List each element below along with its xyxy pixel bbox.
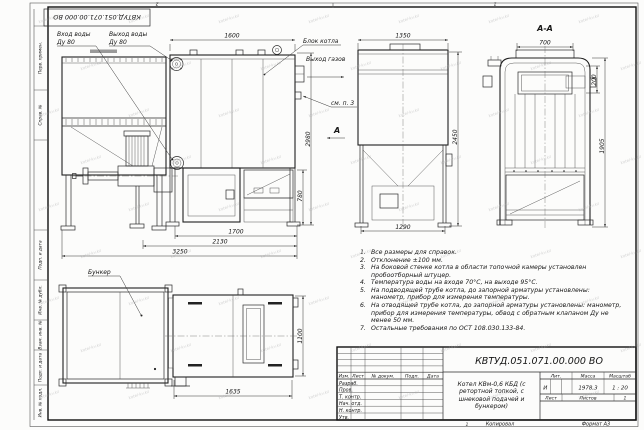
inverted-stamp: КВТУД.051.071.00.000 ВО: [44, 9, 150, 26]
tb-scale-value: 1 : 20: [612, 386, 628, 392]
tb-row-nkontr: Н. контр.: [339, 408, 362, 414]
gas-outlet-label: Выход газов: [306, 56, 346, 63]
tb-sheets-label: Листов: [578, 396, 596, 402]
zone-top-left: 2: [155, 1, 158, 7]
side-view-geometry: [355, 44, 452, 230]
note-item-3: 3.На боковой стенке котла в области топо…: [360, 264, 622, 279]
water-inlet-label: Вход воды: [57, 31, 91, 38]
dim-plan-1635: 1635: [225, 389, 240, 396]
left-label-podp-data-2: Подп. и дата: [38, 353, 44, 383]
dim-side-2450: 2450: [452, 129, 459, 144]
tb-row-tkontr: Т. контр.: [339, 394, 361, 400]
notes-list: 1.Все размеры для справок. 2.Отклонение …: [360, 249, 622, 332]
bunker-label: Бункер: [88, 269, 111, 276]
tb-mass-header: Масса: [581, 374, 596, 380]
note-num: 3.: [360, 264, 371, 279]
dim-front-780: 780: [297, 190, 304, 202]
drawing-canvas: КВТУД.051.071.00.000 ВО 2 1 1 Перв. прим…: [0, 0, 644, 430]
tb-row-nachotd: Нач. отд.: [339, 401, 362, 407]
note-text: Остальные требования по ОСТ 108.030.133-…: [371, 325, 622, 333]
tb-col-doc: № докум.: [371, 374, 395, 380]
left-label-inv-dubl: Инв. № дубл.: [38, 285, 44, 314]
tb-mass-value: 1978,3: [578, 386, 598, 392]
note-text: На боковой стенке котла в области топочн…: [371, 264, 622, 279]
left-label-sprav-no: Справ. №: [38, 104, 44, 125]
water-outlet-label: Выход воды: [109, 31, 147, 38]
zone-top-right: 1: [493, 1, 496, 7]
inverted-stamp-text: КВТУД.051.071.00.000 ВО: [53, 13, 140, 21]
dim-front-1700: 1700: [228, 229, 243, 236]
section-aa-geometry: [483, 46, 596, 230]
note-text: На отводящей трубе котла, до запорной ар…: [371, 302, 622, 325]
dim-aa-1905: 1905: [599, 138, 606, 153]
note-item-2: 2.Отклонение ±100 мм.: [360, 257, 622, 265]
tb-col-izm: Изм.: [339, 374, 350, 380]
note-item-5: 5.На подводящей трубе котла, до запорной…: [360, 287, 622, 302]
note-num: 7.: [360, 325, 371, 333]
drawing-sheet: КВТУД.051.071.00.000 ВО 2 1 1 Перв. прим…: [0, 0, 644, 430]
dim-aa-700: 700: [539, 40, 551, 47]
left-label-vzam-inv: Взам. инв. №: [38, 320, 44, 350]
frame-left-labels: Перв. примен. Справ. № Подп. и дата Инв.…: [38, 42, 44, 417]
note-item-6: 6.На отводящей трубе котла, до запорной …: [360, 302, 622, 325]
note-text: Температура воды на входе 70°С, на выход…: [371, 279, 622, 287]
tb-doc-code: КВТУД.051.071.00.000 ВО: [475, 356, 603, 367]
dim-front-1600: 1600: [224, 33, 239, 40]
plan-view-geometry: [59, 285, 300, 388]
tb-col-podp: Подп.: [405, 374, 419, 380]
tb-col-data: Дата: [426, 374, 439, 380]
note-num: 2.: [360, 257, 371, 265]
note-text: Отклонение ±100 мм.: [371, 257, 622, 265]
note-num: 4.: [360, 279, 371, 287]
side-view-annotations: 1350 2450 1290: [358, 33, 462, 235]
tb-row-prov: Пров.: [339, 388, 353, 394]
tb-sheet-label: Лист: [544, 396, 557, 402]
dim-front-2130: 2130: [212, 239, 227, 246]
dim-front-3250: 3250: [172, 249, 187, 256]
tb-col-list: Лист: [351, 374, 364, 380]
zone-bottom: 1: [466, 422, 469, 428]
note-num: 1.: [360, 249, 371, 257]
note-num: 5.: [360, 287, 371, 302]
see-note-label: см. п. 3: [331, 100, 354, 107]
note-item-4: 4.Температура воды на входе 70°С, на вых…: [360, 279, 622, 287]
left-label-podp-data-1: Подп. и дата: [38, 240, 44, 270]
tb-sheets-value: 1: [624, 396, 627, 402]
tb-lit-header: Лит.: [550, 374, 562, 380]
dim-aa-200: 200: [591, 74, 598, 86]
tb-copied-label: Копировал: [486, 422, 515, 428]
dim-plan-1100: 1100: [297, 328, 304, 343]
dim-side-1350: 1350: [395, 33, 410, 40]
note-num: 6.: [360, 302, 371, 325]
tb-product-name: Котел КВм-0,6 КБД (с ретортной топкой, с…: [444, 373, 539, 418]
section-aa-title: А-А: [536, 24, 553, 33]
note-item-7: 7.Остальные требования по ОСТ 108.030.13…: [360, 325, 622, 333]
section-aa-annotations: А-А 700 200 1905: [517, 24, 608, 227]
tb-format-label: Формат А3: [582, 422, 610, 428]
front-view-annotations: Вход воды Ду 80 Выход воды Ду 80 Блок ко…: [56, 31, 357, 259]
water-outlet-dn: Ду 80: [108, 39, 127, 46]
tb-row-utv: Утв.: [339, 415, 349, 421]
section-cut-letter: А: [333, 126, 340, 135]
water-inlet-dn: Ду 80: [56, 39, 75, 46]
dim-front-2980: 2980: [305, 131, 312, 146]
left-label-perv-primen: Перв. примен.: [38, 42, 44, 74]
dim-side-1290: 1290: [395, 224, 410, 231]
note-text: Все размеры для справок.: [371, 249, 622, 257]
note-text: На подводящей трубе котла, до запорной а…: [371, 287, 622, 302]
tb-scale-header: Масштаб: [609, 374, 631, 380]
tb-row-razrab: Разраб.: [339, 381, 358, 387]
tb-lit-value: И: [543, 386, 547, 392]
front-view-geometry: [61, 46, 304, 231]
note-item-1: 1.Все размеры для справок.: [360, 249, 622, 257]
left-label-inv-podl: Инв. № подл.: [38, 388, 44, 418]
boiler-block-label: Блок котла: [303, 38, 339, 45]
